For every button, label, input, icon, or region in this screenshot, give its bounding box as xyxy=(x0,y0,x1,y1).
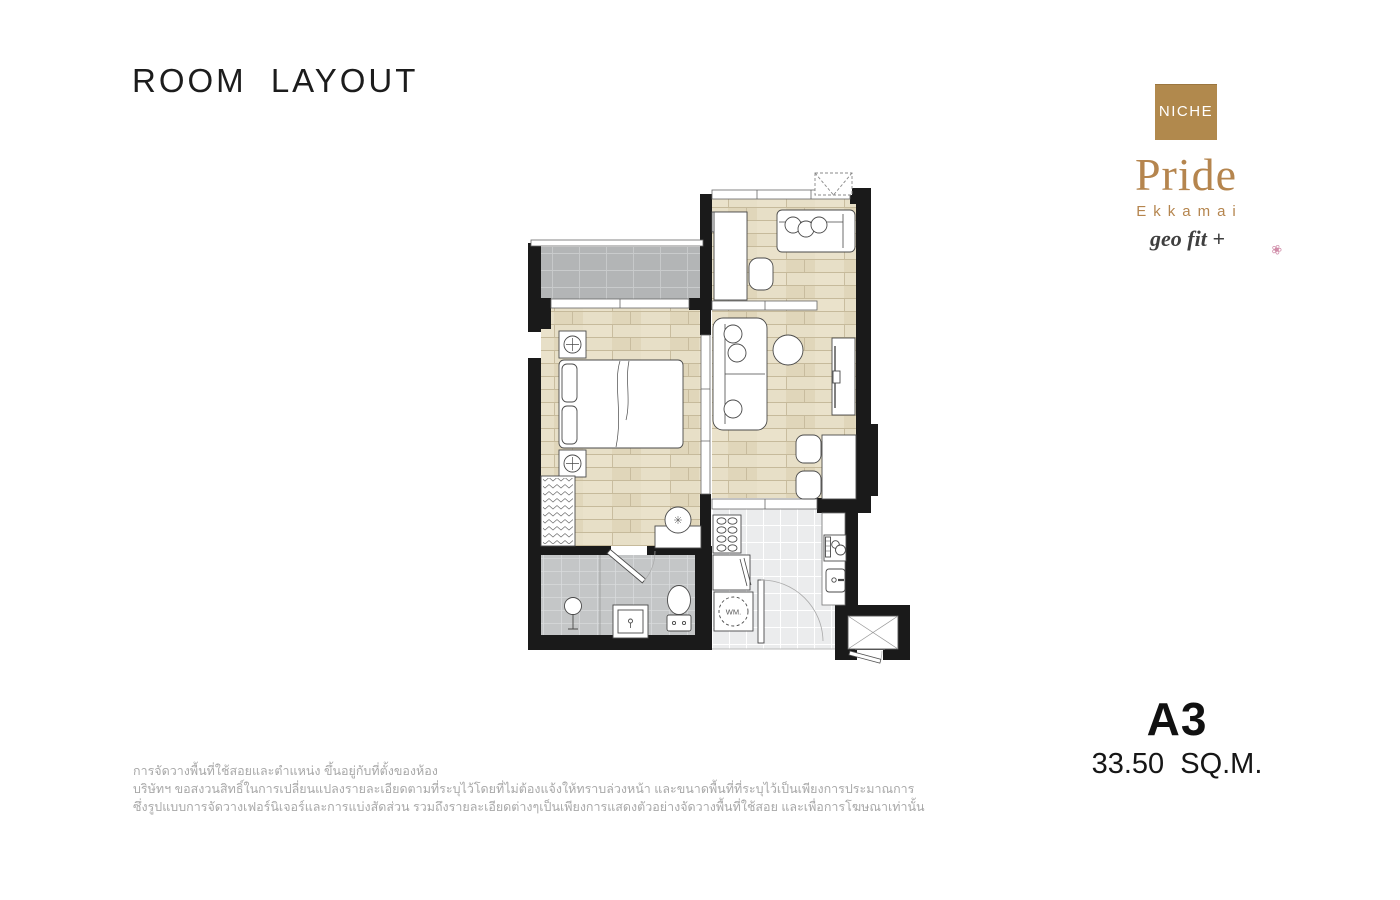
niche-badge: NICHE xyxy=(1155,84,1217,140)
coffee-table xyxy=(773,335,803,365)
unit-type: A3 xyxy=(1048,692,1306,746)
living-room-window xyxy=(712,301,817,310)
brand-location: Ekkamai xyxy=(1088,203,1284,220)
geofit-tagline-row: geo fit + ❀ xyxy=(1150,226,1270,252)
disclaimer-line: บริษัทฯ ขอสงวนสิทธิ์ในการเปลี่ยนแปลงรายล… xyxy=(133,781,925,799)
page-title: ROOM LAYOUT xyxy=(132,62,418,100)
unit-label-block: A3 33.50 SQ.M. xyxy=(1048,692,1306,781)
balcony-floor xyxy=(539,247,701,301)
toilet xyxy=(667,586,691,632)
nightstand-bottom xyxy=(559,450,586,477)
disclaimer-line: ซึ่งรูปแบบการจัดวางเฟอร์นิเจอร์และการแบ่… xyxy=(133,799,925,817)
wall-recess xyxy=(528,332,541,358)
geofit-flower-icon: ❀ xyxy=(1269,241,1285,260)
bed xyxy=(559,360,683,448)
tv-console xyxy=(832,338,855,415)
brand-name: Pride xyxy=(1088,148,1284,201)
balcony-railing xyxy=(531,240,703,246)
disclaimer-line: การจัดวางพื้นที่ใช้สอยและตำแหน่ง ขึ้นอยู… xyxy=(133,763,925,781)
washing-machine: WM. xyxy=(714,592,753,631)
nightstand-top xyxy=(559,331,586,358)
wardrobe xyxy=(541,476,575,546)
daybed xyxy=(777,210,855,252)
kitchen-partition-window xyxy=(712,499,817,509)
kitchen-sink xyxy=(826,569,845,592)
desk xyxy=(712,212,747,300)
washing-machine-label: WM. xyxy=(726,608,741,617)
floor-plan: WM. xyxy=(525,168,915,668)
ac-unit xyxy=(815,173,852,195)
dining-table xyxy=(822,435,856,499)
disclaimer: การจัดวางพื้นที่ใช้สอยและตำแหน่ง ขึ้นอยู… xyxy=(133,763,925,816)
unit-area: 33.50 SQ.M. xyxy=(1048,748,1306,781)
bedroom-living-sliding-door xyxy=(701,335,710,494)
geofit-tagline: geo fit + xyxy=(1150,226,1225,251)
kitchen-counter xyxy=(713,555,751,590)
bathroom-sink xyxy=(613,605,648,638)
brand-logo: NICHE Pride Ekkamai geo fit + ❀ xyxy=(1088,84,1284,252)
dining-chair xyxy=(796,471,821,499)
desk-chair xyxy=(749,258,773,290)
sofa xyxy=(713,318,767,430)
stove xyxy=(824,535,846,561)
dining-chair xyxy=(796,435,821,463)
shoe-cabinet xyxy=(713,515,741,553)
